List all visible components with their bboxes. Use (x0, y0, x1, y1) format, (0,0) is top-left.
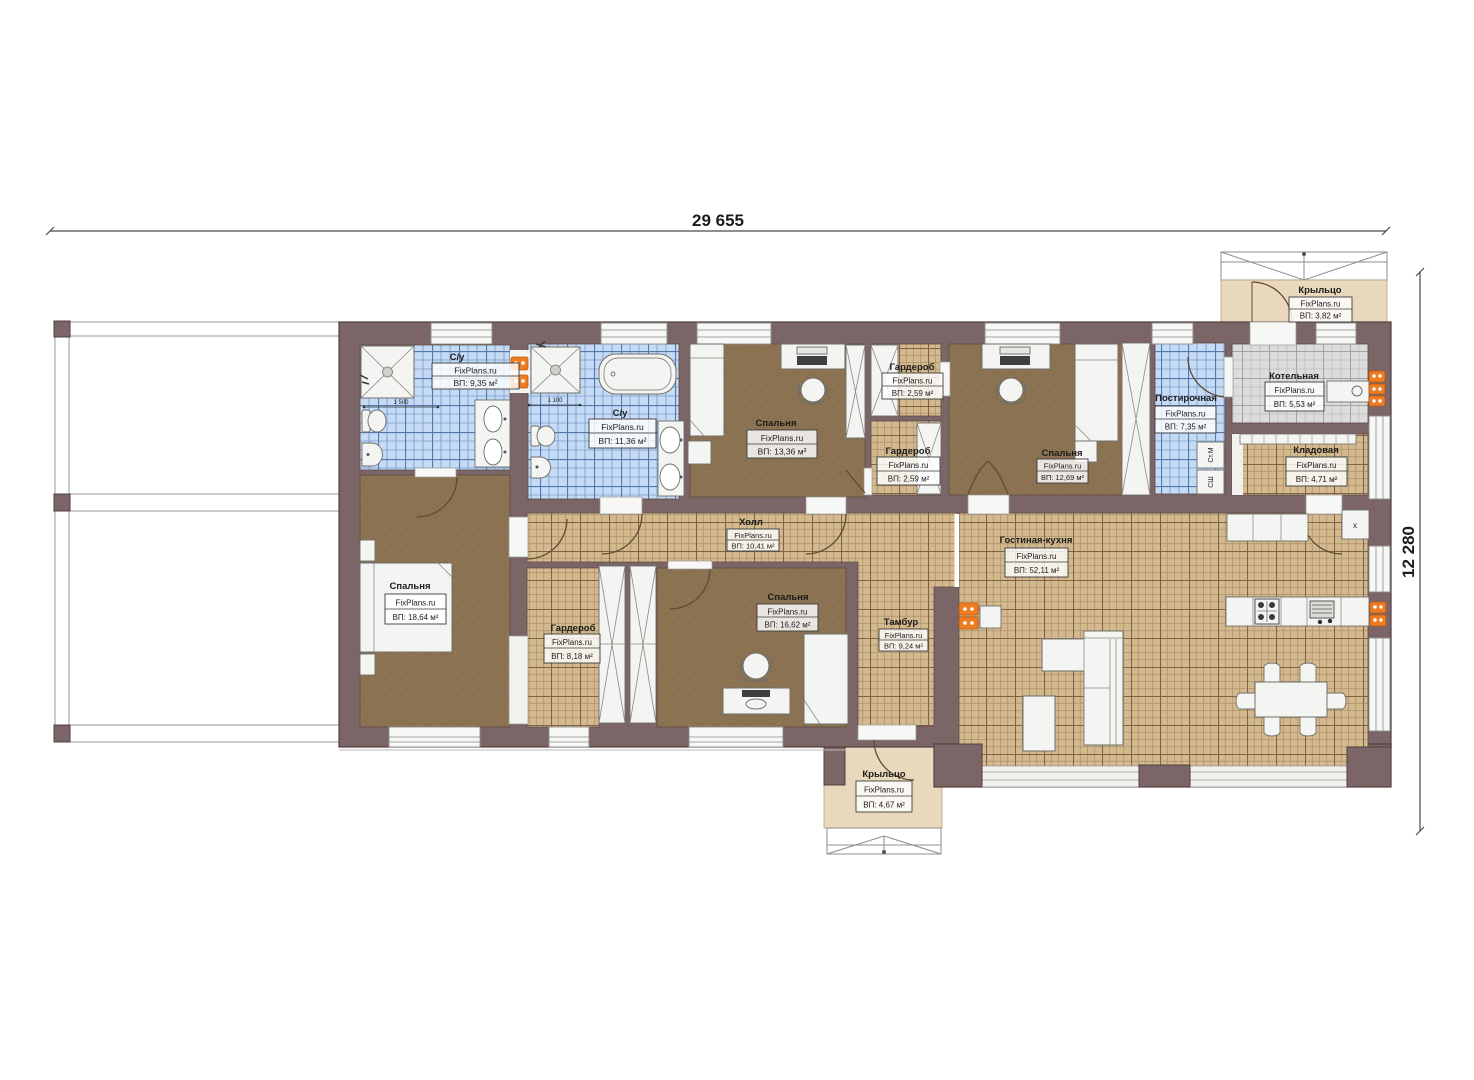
svg-text:FixPlans.ru: FixPlans.ru (1016, 552, 1056, 561)
svg-text:Постирочная: Постирочная (1155, 393, 1217, 404)
svg-text:Спальня: Спальня (389, 581, 430, 592)
svg-text:Гардероб: Гардероб (886, 446, 931, 457)
svg-text:ВП: 10,41 м²: ВП: 10,41 м² (731, 542, 775, 551)
svg-text:Крыльцо: Крыльцо (1298, 285, 1341, 296)
svg-text:ВП: 8,18 м²: ВП: 8,18 м² (551, 652, 593, 661)
svg-text:С/у: С/у (450, 352, 466, 363)
svg-text:1 500: 1 500 (393, 400, 409, 406)
svg-text:FixPlans.ru: FixPlans.ru (1296, 461, 1336, 470)
svg-text:FixPlans.ru: FixPlans.ru (761, 433, 804, 443)
svg-text:ВП: 13,36 м²: ВП: 13,36 м² (758, 447, 807, 457)
svg-text:FixPlans.ru: FixPlans.ru (734, 531, 772, 540)
svg-text:Спальня: Спальня (1041, 448, 1082, 459)
svg-text:12 280: 12 280 (1399, 526, 1418, 578)
svg-text:Холл: Холл (739, 517, 763, 528)
svg-text:ВП: 7,35 м²: ВП: 7,35 м² (1165, 423, 1207, 432)
svg-text:x: x (1353, 521, 1357, 530)
svg-text:ВП: 11,36 м²: ВП: 11,36 м² (598, 436, 646, 446)
svg-text:Ст.М: Ст.М (1208, 447, 1215, 462)
svg-text:Кладовая: Кладовая (1293, 445, 1339, 456)
svg-text:FixPlans.ru: FixPlans.ru (552, 638, 592, 647)
svg-text:ВП: 52,11 м²: ВП: 52,11 м² (1014, 566, 1060, 575)
svg-text:FixPlans.ru: FixPlans.ru (1274, 386, 1314, 395)
svg-text:ВП: 2,59 м²: ВП: 2,59 м² (892, 389, 934, 398)
svg-text:FixPlans.ru: FixPlans.ru (1300, 300, 1340, 309)
svg-text:Гостиная-кухня: Гостиная-кухня (1000, 535, 1073, 546)
svg-text:ВП: 2,59 м²: ВП: 2,59 м² (888, 475, 930, 484)
svg-text:Гардероб: Гардероб (551, 623, 596, 634)
svg-text:С/у: С/у (613, 408, 629, 419)
svg-text:FixPlans.ru: FixPlans.ru (888, 461, 928, 470)
svg-text:Спальня: Спальня (755, 418, 796, 429)
svg-text:Крыльцо: Крыльцо (862, 769, 905, 780)
svg-text:FixPlans.ru: FixPlans.ru (601, 422, 644, 432)
svg-text:Спальня: Спальня (767, 592, 808, 603)
svg-text:FixPlans.ru: FixPlans.ru (864, 786, 904, 795)
svg-text:ВП: 3,82 м²: ВП: 3,82 м² (1300, 312, 1342, 321)
svg-text:ВП: 4,71 м²: ВП: 4,71 м² (1296, 475, 1338, 484)
svg-text:FixPlans.ru: FixPlans.ru (767, 608, 807, 617)
svg-text:FixPlans.ru: FixPlans.ru (1044, 462, 1082, 471)
svg-text:ВП: 18,64 м²: ВП: 18,64 м² (393, 613, 439, 622)
svg-text:FixPlans.ru: FixPlans.ru (1165, 410, 1205, 419)
svg-text:ВП: 12,69 м²: ВП: 12,69 м² (1041, 473, 1085, 482)
svg-text:ВП: 5,53 м²: ВП: 5,53 м² (1274, 400, 1316, 409)
svg-text:ВП: 9,35 м²: ВП: 9,35 м² (453, 378, 497, 388)
svg-text:29 655: 29 655 (692, 211, 744, 230)
svg-text:FixPlans.ru: FixPlans.ru (395, 599, 435, 608)
svg-text:ВП: 4,67 м²: ВП: 4,67 м² (863, 801, 905, 810)
svg-text:СШ: СШ (1208, 476, 1215, 487)
svg-text:FixPlans.ru: FixPlans.ru (892, 377, 932, 386)
svg-text:ВП: 16,62 м²: ВП: 16,62 м² (765, 621, 811, 630)
svg-text:Тамбур: Тамбур (884, 617, 919, 628)
svg-text:Котельная: Котельная (1269, 371, 1319, 382)
svg-text:FixPlans.ru: FixPlans.ru (885, 631, 923, 640)
svg-text:Гардероб: Гардероб (890, 362, 935, 373)
svg-text:1 100: 1 100 (547, 398, 563, 404)
svg-text:ВП: 9,24 м²: ВП: 9,24 м² (884, 642, 923, 651)
svg-text:FixPlans.ru: FixPlans.ru (454, 366, 497, 376)
